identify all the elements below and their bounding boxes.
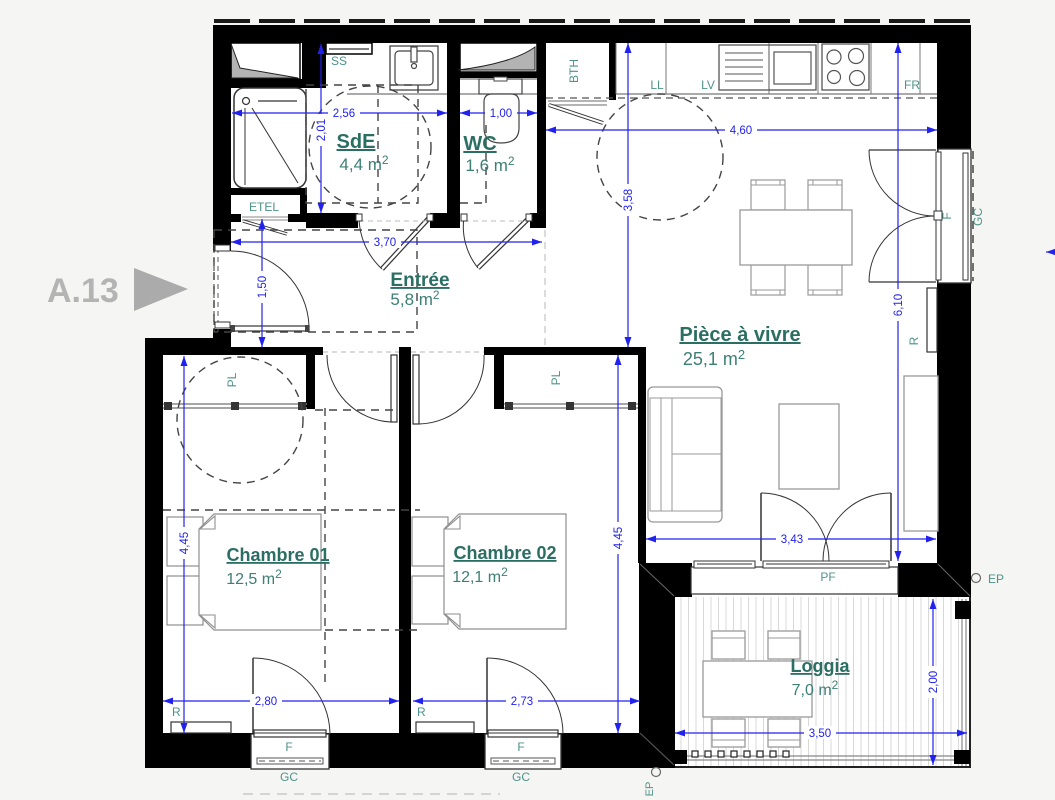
svg-text:F: F bbox=[940, 212, 954, 219]
svg-text:1,6 m2: 1,6 m2 bbox=[465, 154, 515, 175]
svg-text:3,70: 3,70 bbox=[374, 237, 396, 249]
svg-text:LL: LL bbox=[650, 78, 664, 92]
svg-text:Chambre 01: Chambre 01 bbox=[226, 545, 329, 565]
svg-text:SS: SS bbox=[331, 54, 347, 68]
svg-text:PL: PL bbox=[225, 372, 239, 387]
svg-text:F: F bbox=[517, 740, 524, 754]
svg-text:1,00: 1,00 bbox=[490, 108, 512, 120]
svg-text:12,5 m2: 12,5 m2 bbox=[226, 567, 282, 588]
svg-text:Chambre 02: Chambre 02 bbox=[453, 543, 556, 563]
svg-text:GC: GC bbox=[280, 770, 298, 784]
svg-text:PF: PF bbox=[820, 570, 835, 584]
svg-text:LV: LV bbox=[701, 78, 715, 92]
svg-text:R: R bbox=[172, 705, 181, 719]
svg-text:EP: EP bbox=[644, 782, 656, 797]
svg-text:GC: GC bbox=[971, 208, 985, 226]
svg-text:12,1 m2: 12,1 m2 bbox=[452, 565, 508, 586]
svg-text:4,45: 4,45 bbox=[613, 527, 625, 549]
svg-text:2,73: 2,73 bbox=[511, 696, 533, 708]
svg-text:3,43: 3,43 bbox=[781, 534, 803, 546]
svg-text:4,4 m2: 4,4 m2 bbox=[339, 153, 389, 174]
svg-text:1,50: 1,50 bbox=[257, 276, 269, 298]
svg-text:Pièce à vivre: Pièce à vivre bbox=[679, 324, 800, 346]
svg-text:2,00: 2,00 bbox=[928, 671, 940, 693]
svg-text:2,80: 2,80 bbox=[255, 696, 277, 708]
svg-text:F: F bbox=[285, 740, 292, 754]
svg-text:2,01: 2,01 bbox=[316, 119, 328, 141]
svg-text:4,60: 4,60 bbox=[730, 125, 752, 137]
svg-text:GC: GC bbox=[512, 770, 530, 784]
svg-text:R: R bbox=[417, 705, 426, 719]
svg-text:PL: PL bbox=[549, 370, 563, 385]
svg-text:WC: WC bbox=[463, 133, 496, 155]
svg-text:3,50: 3,50 bbox=[809, 728, 831, 740]
svg-text:FR: FR bbox=[904, 78, 920, 92]
svg-text:Loggia: Loggia bbox=[791, 656, 851, 676]
svg-text:R: R bbox=[907, 336, 921, 345]
svg-text:3,58: 3,58 bbox=[623, 189, 635, 211]
svg-text:EP: EP bbox=[988, 572, 1004, 586]
svg-text:Entrée: Entrée bbox=[390, 270, 449, 291]
svg-text:6,10: 6,10 bbox=[893, 294, 905, 316]
svg-text:SdE: SdE bbox=[337, 131, 376, 153]
svg-text:ETEL: ETEL bbox=[249, 200, 279, 214]
svg-text:A.13: A.13 bbox=[47, 272, 119, 310]
svg-text:7,0 m2: 7,0 m2 bbox=[792, 678, 839, 699]
svg-text:BTH: BTH bbox=[567, 59, 581, 83]
svg-text:25,1 m2: 25,1 m2 bbox=[683, 347, 745, 369]
svg-text:2,56: 2,56 bbox=[333, 108, 355, 120]
svg-text:5,8 m2: 5,8 m2 bbox=[390, 288, 440, 309]
svg-text:4,45: 4,45 bbox=[179, 532, 191, 554]
